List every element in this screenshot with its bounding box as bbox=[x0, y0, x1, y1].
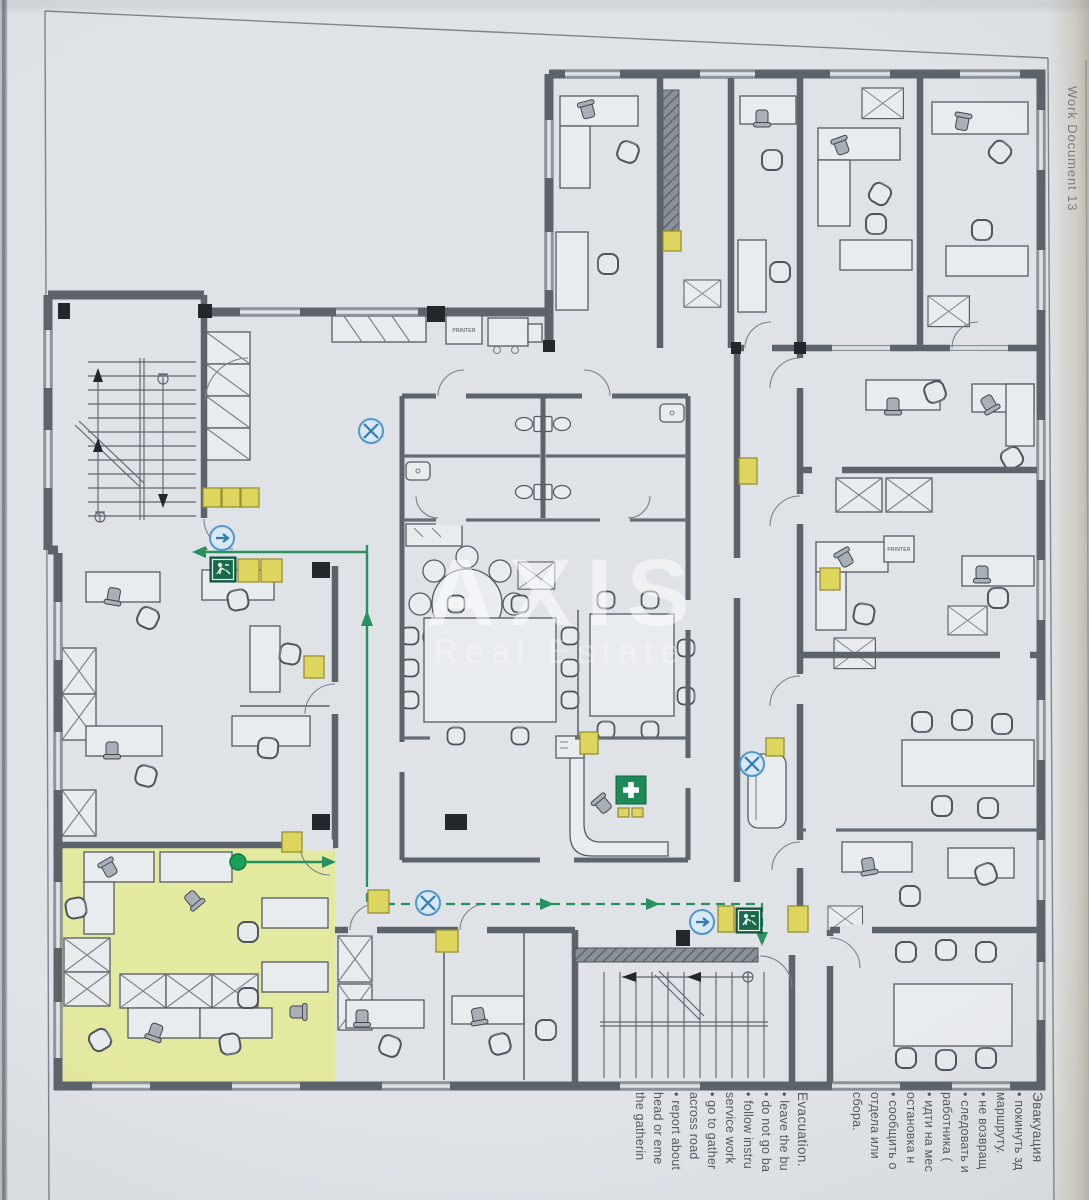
legend-english: Evacuation. • leave the bu • do not go b… bbox=[631, 1092, 812, 1172]
exit-running-man-icon bbox=[210, 557, 236, 582]
legend-line: • идти на мес bbox=[920, 1092, 938, 1173]
fire-safety-sign-icon bbox=[241, 488, 259, 507]
watermark-subtitle: Real Estate bbox=[434, 633, 687, 671]
printer-label: PRINTER bbox=[887, 547, 911, 553]
fire-safety-sign-icon bbox=[766, 738, 784, 756]
legend-line: работника ( bbox=[938, 1092, 956, 1173]
legend-line: service work bbox=[721, 1092, 739, 1172]
fire-safety-sign-icon bbox=[632, 808, 643, 817]
legend-line: • leave the bu bbox=[775, 1092, 793, 1172]
direction-arrow-sign-icon bbox=[690, 910, 714, 934]
fire-safety-sign-icon bbox=[820, 568, 840, 590]
fire-safety-sign-icon bbox=[261, 559, 282, 582]
legend-line: • go to gather bbox=[703, 1092, 721, 1172]
fire-safety-sign-icon bbox=[618, 808, 629, 817]
direction-arrow-sign-icon bbox=[210, 526, 234, 550]
fire-safety-sign-icon bbox=[282, 832, 302, 852]
fire-safety-sign-icon bbox=[739, 458, 757, 484]
watermark-title: AXIS bbox=[426, 540, 704, 646]
legend-line: • не возвращ bbox=[974, 1092, 992, 1173]
exit-running-man-icon bbox=[736, 908, 762, 933]
legend-line: • покинуть зд bbox=[1010, 1092, 1028, 1173]
fire-safety-sign-icon bbox=[368, 890, 389, 913]
legend-line: маршруту. bbox=[992, 1092, 1010, 1173]
fire-safety-sign-icon bbox=[436, 930, 458, 952]
fire-safety-sign-icon bbox=[788, 906, 808, 932]
fire-safety-sign-icon bbox=[718, 906, 734, 932]
fire-safety-sign-icon bbox=[238, 559, 259, 582]
legend-line: head or eme bbox=[649, 1092, 667, 1172]
evacuation-plan-photo: PRINTER PRINTER bbox=[0, 0, 1089, 1200]
legend-line: • сообщить о bbox=[884, 1092, 902, 1173]
fire-safety-sign-icon bbox=[304, 656, 324, 678]
legend-line: • report about bbox=[667, 1092, 685, 1172]
printer-box: PRINTER bbox=[446, 314, 482, 344]
document-side-label: Work Document 13 bbox=[1065, 86, 1080, 211]
legend-line: • do not go ba bbox=[757, 1092, 775, 1172]
fire-safety-sign-icon bbox=[663, 231, 681, 251]
legend-line: across road bbox=[685, 1092, 703, 1172]
legend-line: • следовать и bbox=[956, 1092, 974, 1173]
fire-safety-sign-icon bbox=[203, 488, 221, 507]
first-aid-cross-icon bbox=[616, 776, 646, 804]
legend-title-en: Evacuation. bbox=[793, 1092, 812, 1172]
legend-line: остановка н bbox=[902, 1092, 920, 1173]
crossed-circle-sign-icon bbox=[416, 891, 440, 915]
legend-line: отдела или bbox=[866, 1092, 884, 1173]
printer-box: PRINTER bbox=[884, 536, 914, 562]
legend-line: сбора. bbox=[848, 1092, 866, 1173]
crossed-circle-sign-icon bbox=[359, 419, 383, 443]
legend-line: the gatherin bbox=[631, 1092, 649, 1172]
legend-title-ru: Эвакуация bbox=[1028, 1092, 1047, 1173]
printer-label: PRINTER bbox=[452, 328, 476, 334]
crossed-circle-sign-icon bbox=[740, 752, 764, 776]
legend-russian: Эвакуация • покинуть зд маршруту. • не в… bbox=[848, 1092, 1047, 1173]
legend-line: • follow instru bbox=[739, 1092, 757, 1172]
floor-plan-svg: PRINTER PRINTER bbox=[0, 0, 1089, 1200]
fire-safety-sign-icon bbox=[222, 488, 240, 507]
watermark: AXIS Real Estate bbox=[426, 540, 704, 671]
fire-safety-sign-icon bbox=[580, 732, 598, 754]
start-point-dot-icon bbox=[230, 854, 246, 870]
